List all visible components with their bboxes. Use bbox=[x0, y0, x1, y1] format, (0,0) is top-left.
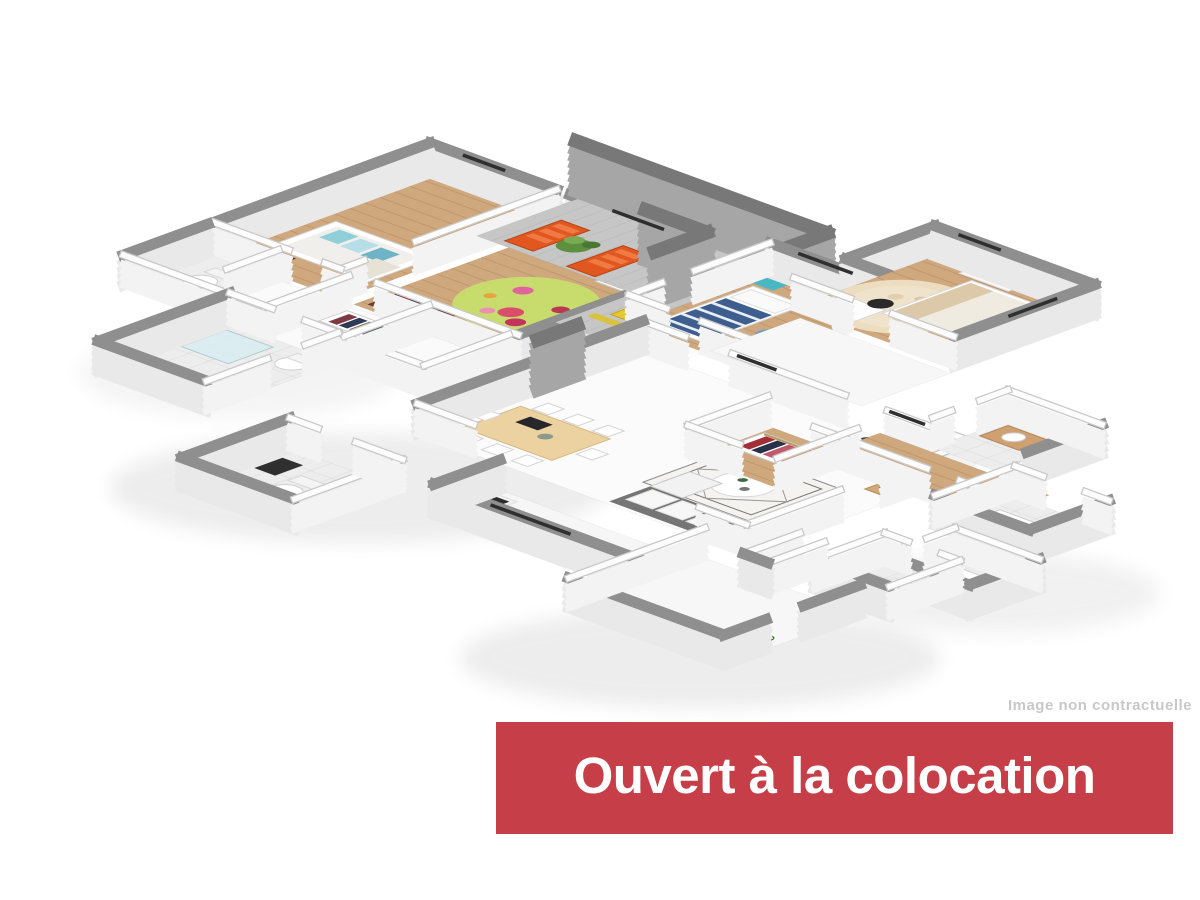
page: Image non contractuelle Ouvert à la colo… bbox=[0, 0, 1200, 900]
banner-label: Ouvert à la colocation bbox=[574, 746, 1096, 811]
office-chair bbox=[867, 299, 894, 309]
banner: Ouvert à la colocation bbox=[496, 722, 1173, 834]
disclaimer-text: Image non contractuelle bbox=[1008, 697, 1192, 714]
floorplan-root bbox=[80, 141, 1160, 708]
